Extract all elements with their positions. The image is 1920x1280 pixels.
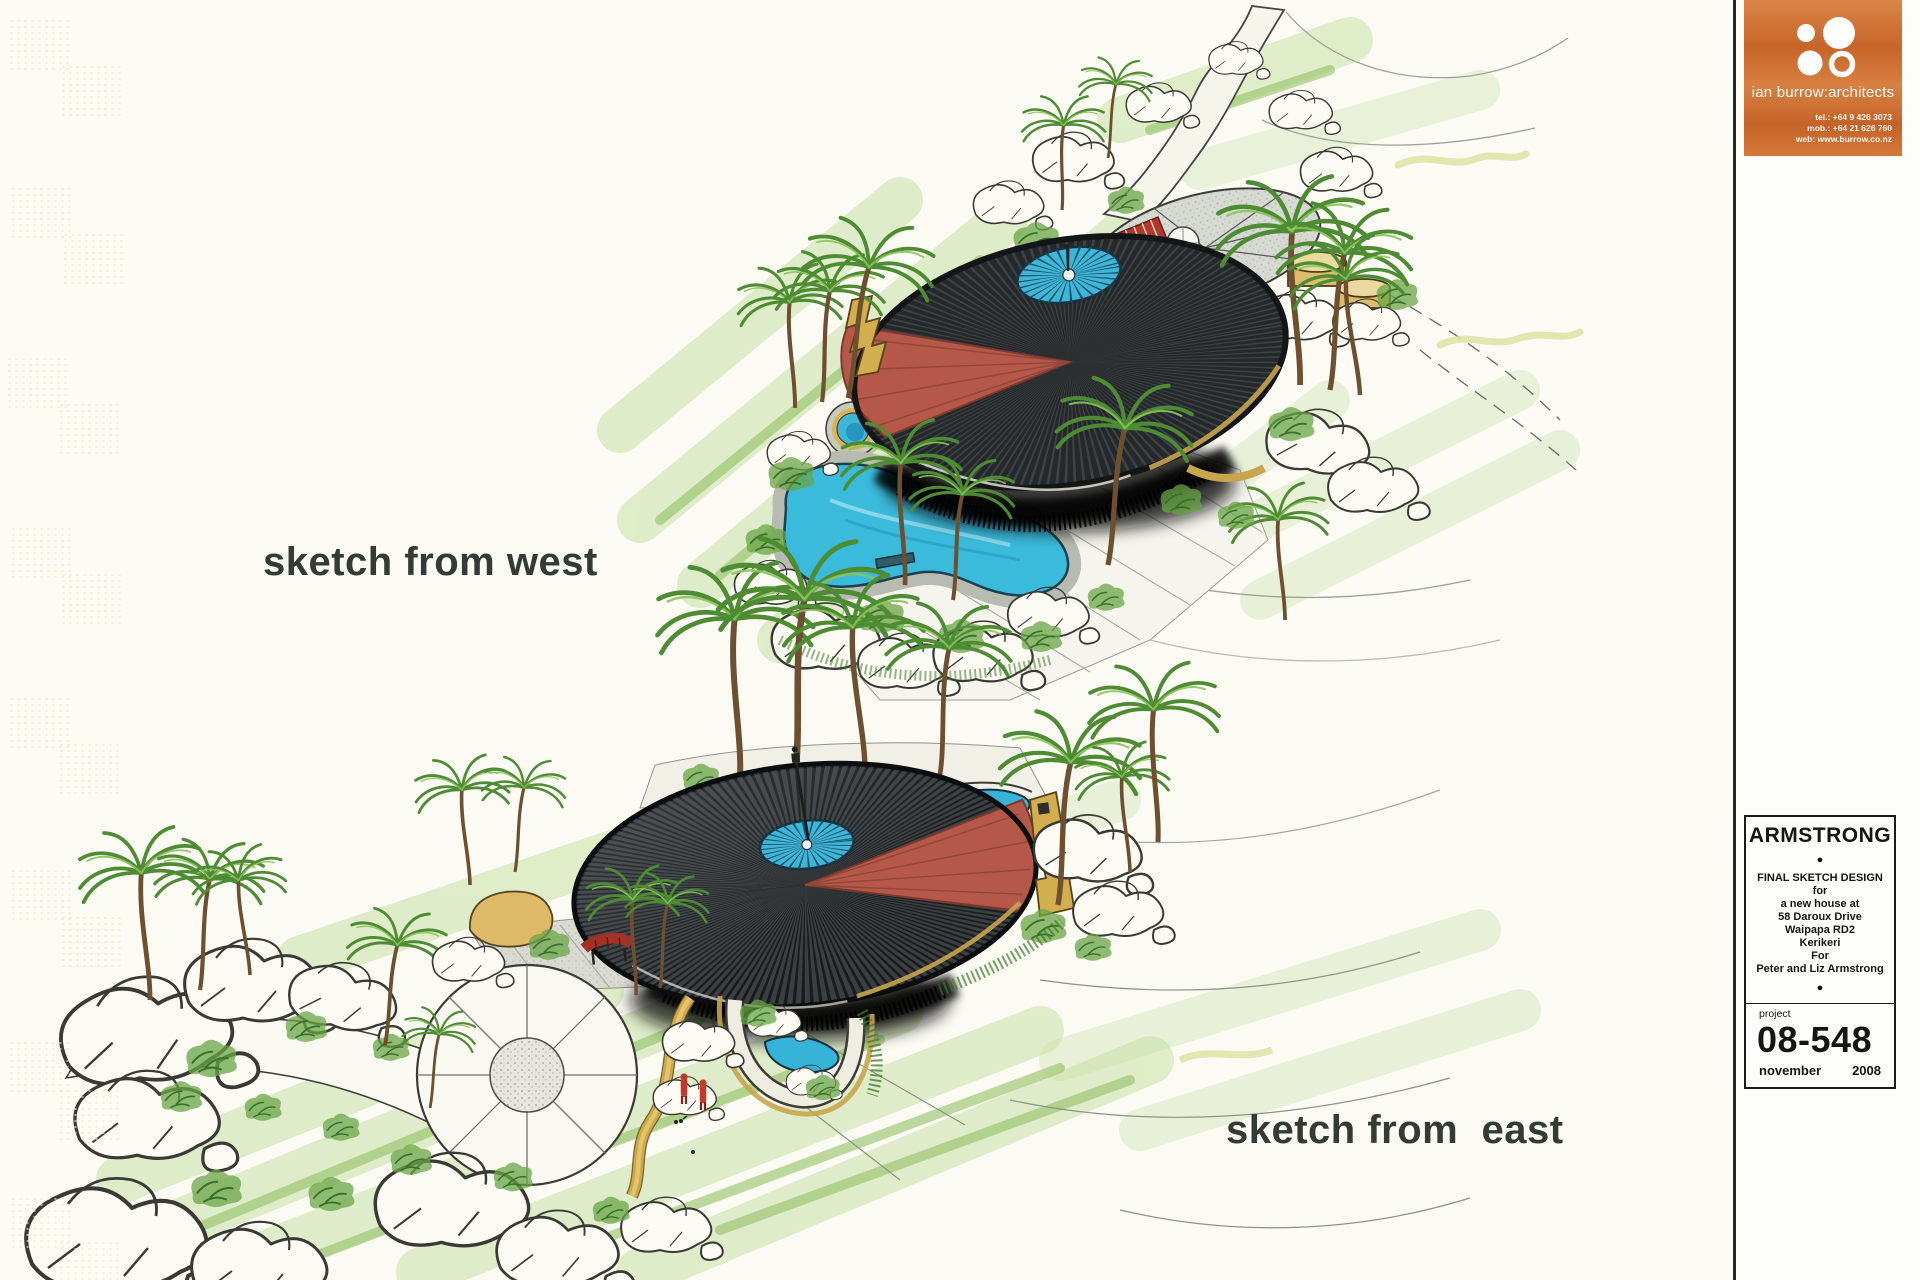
- description-line: FINAL SKETCH DESIGN: [1746, 872, 1894, 885]
- project-year: 2008: [1852, 1063, 1881, 1078]
- title-block-divider: [1746, 1003, 1894, 1004]
- architect-logo-card: ian burrow:architects tel.: +64 9 426 30…: [1744, 0, 1902, 156]
- description-line: Peter and Liz Armstrong: [1746, 963, 1894, 976]
- sheet: sketch from west sketch from east ian bu…: [0, 0, 1920, 1280]
- client-name: ARMSTRONG: [1746, 824, 1894, 848]
- description-line: For: [1746, 950, 1894, 963]
- architect-mobile: mob.: +64 21 626 760: [1807, 123, 1892, 134]
- title-block: ARMSTRONG ● FINAL SKETCH DESIGN for a ne…: [1744, 815, 1896, 1089]
- project-number: 08-548: [1757, 1020, 1894, 1060]
- bullet-separator: ●: [1746, 854, 1894, 867]
- logo-circles-icon: [1744, 0, 1902, 82]
- description-line: a new house at: [1746, 898, 1894, 911]
- description-line: 58 Daroux Drive: [1746, 911, 1894, 924]
- caption-sketch-from-west: sketch from west: [263, 540, 598, 585]
- bullet-separator: ●: [1746, 982, 1894, 995]
- architect-web: web: www.burrow.co.nz: [1796, 134, 1892, 145]
- project-description: FINAL SKETCH DESIGN for a new house at 5…: [1746, 872, 1894, 976]
- description-line: for: [1746, 885, 1894, 898]
- architect-tel: tel.: +64 9 426 3073: [1815, 112, 1892, 123]
- description-line: Waipapa RD2: [1746, 924, 1894, 937]
- drawing-canvas: [0, 0, 1920, 1280]
- description-line: Kerikeri: [1746, 937, 1894, 950]
- caption-sketch-from-east: sketch from east: [1226, 1108, 1564, 1153]
- right-margin-strip: ian burrow:architects tel.: +64 9 426 30…: [1736, 0, 1920, 1280]
- architect-brand-name: ian burrow:architects: [1744, 84, 1902, 101]
- project-month: november: [1759, 1063, 1821, 1078]
- project-date: november 2008: [1746, 1060, 1894, 1078]
